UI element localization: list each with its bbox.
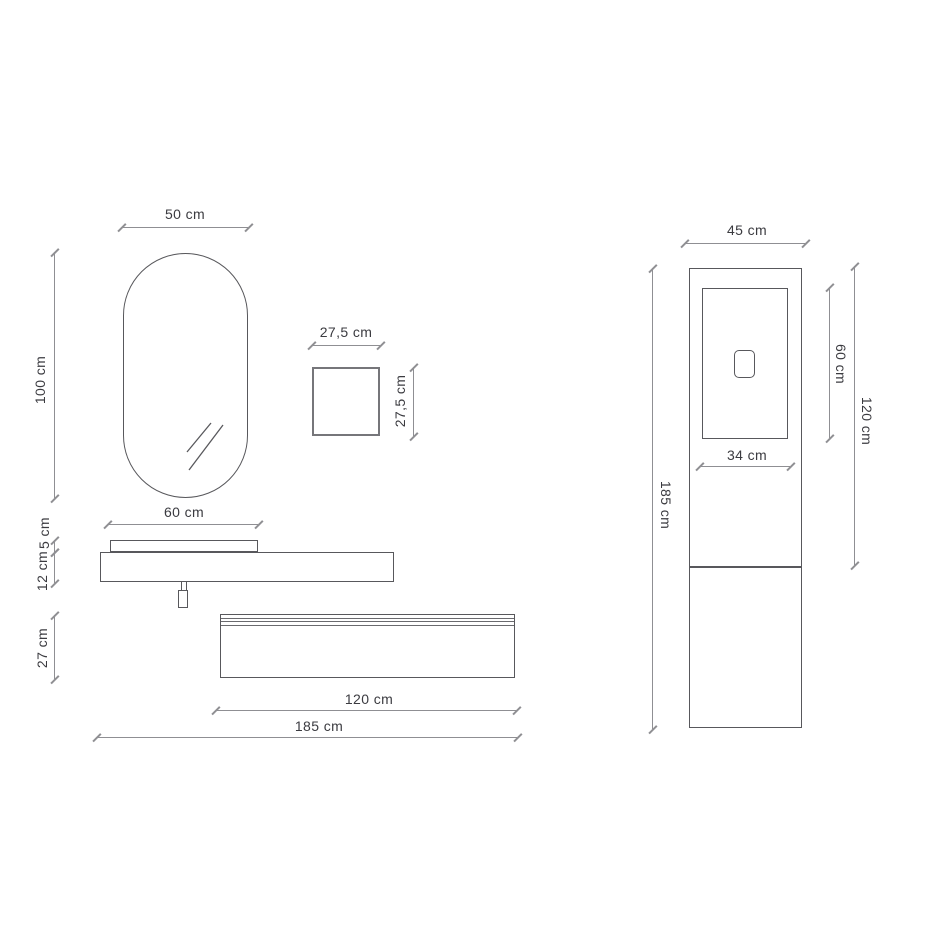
column-door-handle — [734, 350, 755, 378]
dim-line-column-width — [685, 243, 805, 244]
dim-label-door-width: 34 cm — [727, 447, 767, 463]
column-cabinet-figure: 45 cm 34 cm 185 cm 60 cm 120 cm — [0, 0, 950, 950]
dim-label-column-width: 45 cm — [727, 222, 767, 238]
dim-tick — [648, 264, 657, 273]
dim-line-upper-section-height — [854, 266, 855, 565]
column-door-split-line — [689, 566, 802, 568]
technical-drawing-canvas: 50 cm 100 cm 27,5 cm 27,5 cm 60 cm — [0, 0, 950, 950]
dim-tick — [801, 239, 810, 248]
dim-label-column-height: 185 cm — [658, 481, 674, 529]
dim-line-column-height — [652, 268, 653, 729]
dim-tick — [648, 725, 657, 734]
dim-tick — [825, 283, 834, 292]
dim-line-door-height — [829, 287, 830, 438]
dim-label-door-height: 60 cm — [833, 344, 849, 384]
dim-label-upper-section-height: 120 cm — [859, 397, 875, 445]
dim-tick — [680, 239, 689, 248]
dim-line-door-width — [700, 466, 790, 467]
dim-tick — [850, 262, 859, 271]
dim-tick — [825, 434, 834, 443]
dim-tick — [850, 561, 859, 570]
